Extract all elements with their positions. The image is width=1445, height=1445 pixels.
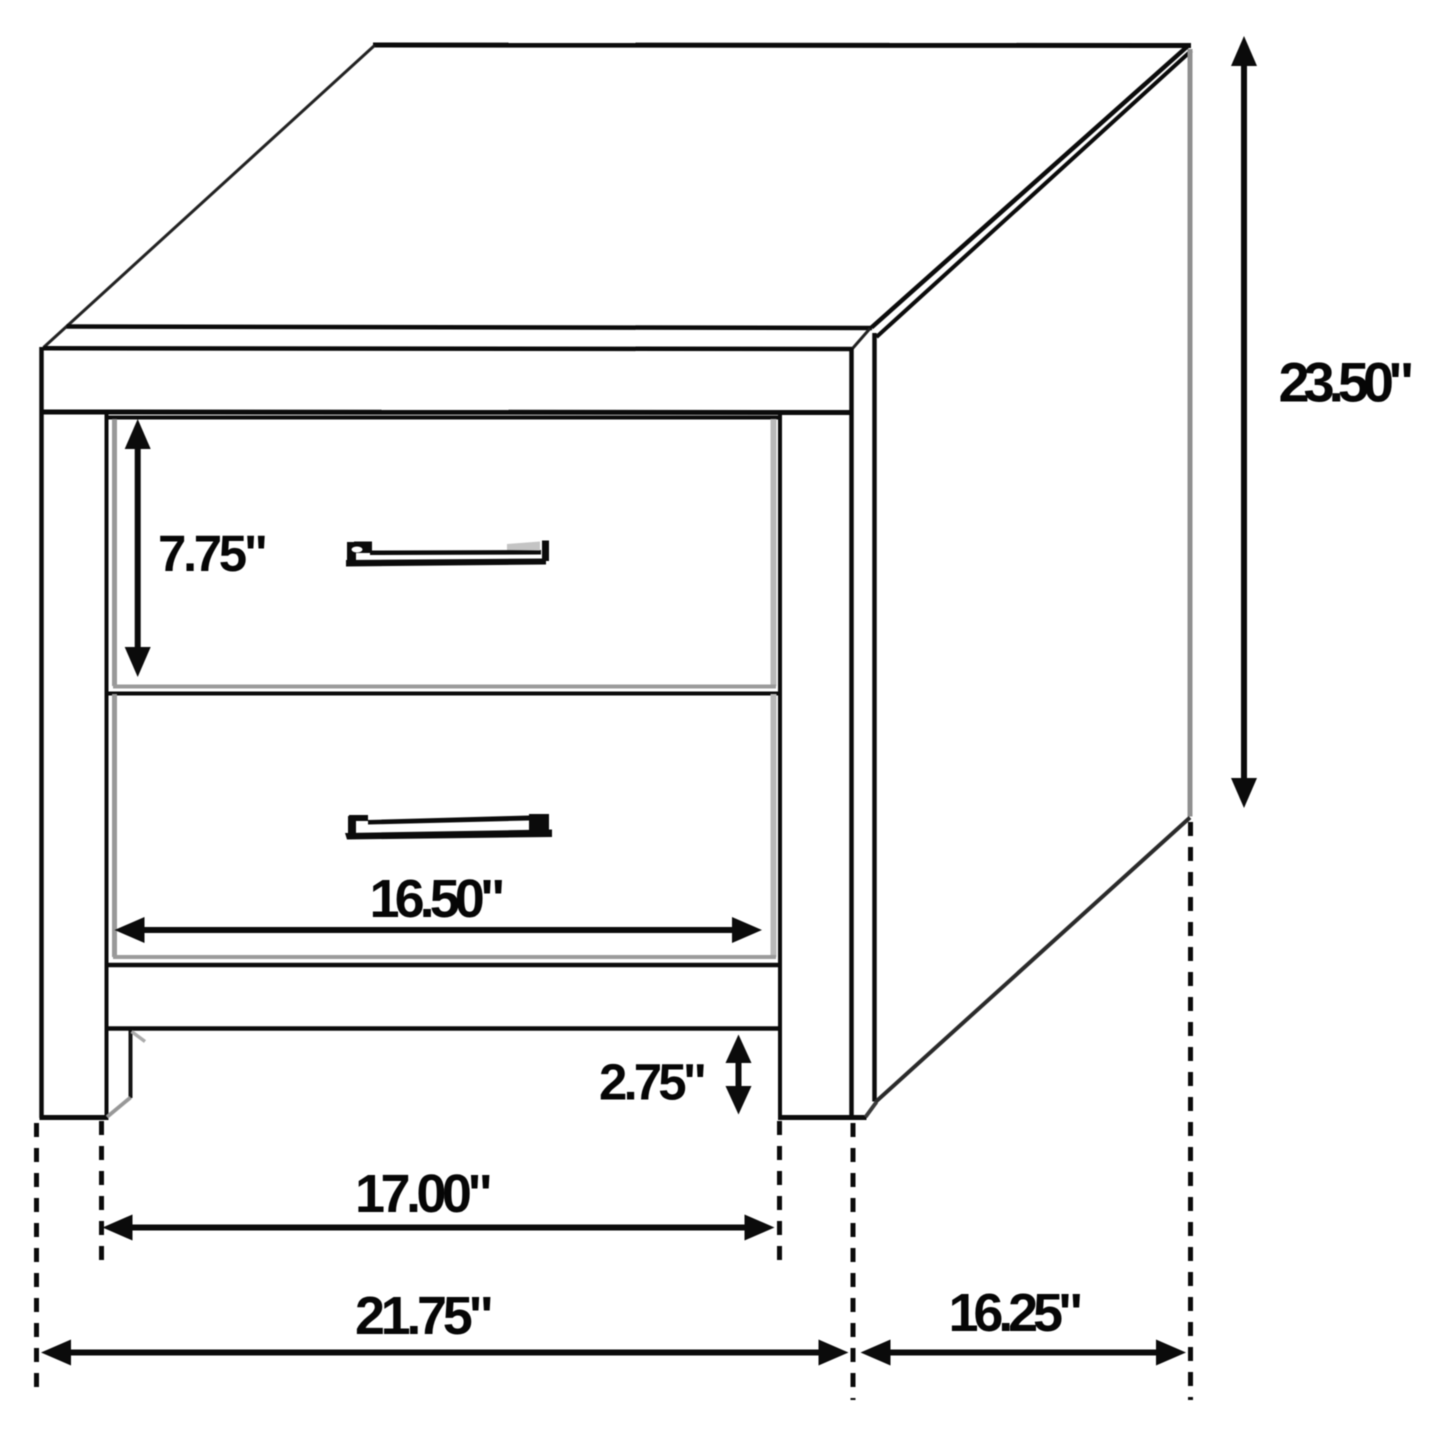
svg-text:2.75": 2.75" — [599, 1054, 707, 1111]
svg-text:21.75": 21.75" — [355, 1286, 494, 1346]
svg-text:7.75": 7.75" — [158, 525, 268, 582]
svg-text:23.50": 23.50" — [1279, 351, 1415, 414]
svg-text:17.00": 17.00" — [355, 1164, 493, 1224]
svg-text:16.25": 16.25" — [949, 1283, 1084, 1343]
svg-text:16.50": 16.50" — [370, 869, 506, 929]
